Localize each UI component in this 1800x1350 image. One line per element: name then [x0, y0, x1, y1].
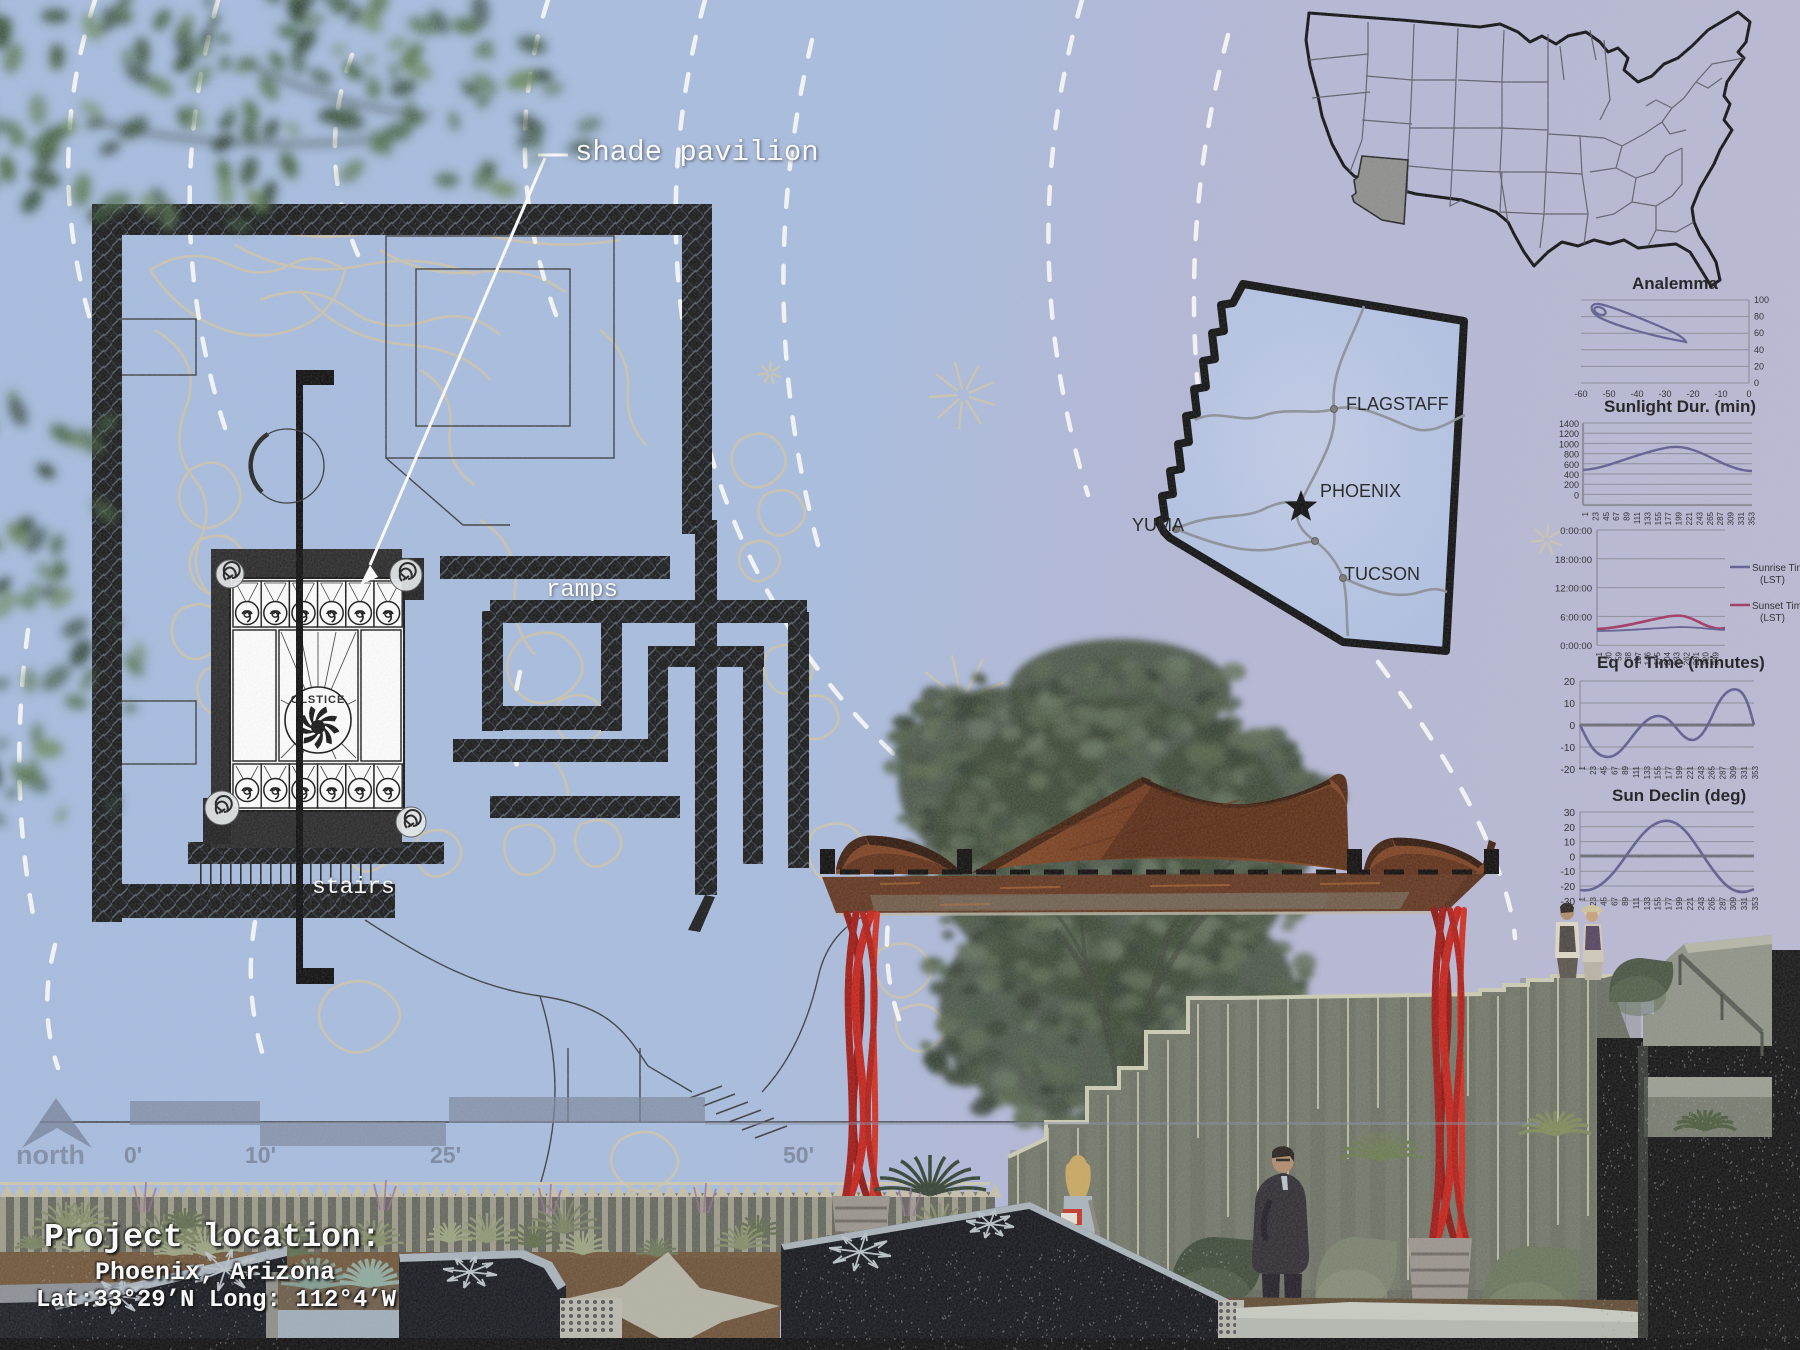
svg-text:PHOENIX: PHOENIX	[1320, 481, 1401, 501]
svg-text:309: 309	[1727, 511, 1736, 525]
svg-text:177: 177	[1664, 511, 1673, 525]
svg-text:331: 331	[1740, 896, 1749, 910]
svg-text:Sun Declin (deg): Sun Declin (deg)	[1612, 786, 1746, 805]
svg-text:YUMA: YUMA	[1132, 515, 1184, 535]
svg-text:1: 1	[1581, 511, 1590, 516]
svg-text:60: 60	[1754, 328, 1764, 338]
svg-text:1000: 1000	[1559, 439, 1579, 449]
svg-text:800: 800	[1564, 450, 1579, 460]
svg-text:23: 23	[1591, 511, 1600, 520]
svg-text:1400: 1400	[1559, 419, 1579, 429]
svg-text:199: 199	[1675, 511, 1684, 525]
svg-text:111: 111	[1632, 765, 1641, 778]
svg-text:400: 400	[1564, 470, 1579, 480]
svg-text:-10: -10	[1561, 743, 1576, 754]
svg-text:(LST): (LST)	[1760, 613, 1785, 624]
svg-text:287: 287	[1718, 896, 1727, 910]
svg-text:Analemma: Analemma	[1632, 274, 1719, 293]
svg-text:89: 89	[1621, 896, 1630, 905]
svg-text:45: 45	[1600, 765, 1609, 774]
svg-text:(LST): (LST)	[1760, 575, 1785, 586]
svg-text:20: 20	[1564, 823, 1576, 834]
svg-text:353: 353	[1751, 765, 1760, 779]
svg-text:353: 353	[1751, 896, 1760, 910]
svg-text:Sunlight Dur. (min): Sunlight Dur. (min)	[1604, 397, 1756, 416]
svg-text:0: 0	[1569, 852, 1575, 863]
svg-text:155: 155	[1654, 765, 1663, 779]
svg-text:331: 331	[1740, 765, 1749, 779]
svg-text:265: 265	[1708, 765, 1717, 779]
svg-text:18:00:00: 18:00:00	[1555, 555, 1592, 566]
svg-text:67: 67	[1610, 896, 1619, 905]
svg-text:265: 265	[1706, 511, 1715, 525]
svg-text:200: 200	[1564, 480, 1579, 490]
svg-text:243: 243	[1695, 511, 1704, 525]
svg-text:89: 89	[1623, 511, 1632, 520]
svg-text:155: 155	[1654, 511, 1663, 525]
svg-text:0: 0	[1574, 490, 1579, 500]
svg-text:10: 10	[1564, 838, 1576, 849]
svg-text:45: 45	[1600, 896, 1609, 905]
svg-text:Sunset Time: Sunset Time	[1752, 601, 1800, 612]
svg-text:199: 199	[1675, 765, 1684, 779]
svg-text:23: 23	[1589, 765, 1598, 774]
svg-text:1200: 1200	[1559, 429, 1579, 439]
svg-text:-10: -10	[1561, 867, 1576, 878]
svg-text:-60: -60	[1574, 389, 1587, 399]
svg-text:45: 45	[1602, 511, 1611, 520]
svg-text:111: 111	[1633, 511, 1642, 524]
svg-text:221: 221	[1686, 765, 1695, 779]
svg-text:221: 221	[1686, 896, 1695, 910]
svg-text:0:00:00: 0:00:00	[1560, 526, 1592, 537]
svg-text:133: 133	[1643, 765, 1652, 779]
svg-text:6:00:00: 6:00:00	[1560, 612, 1592, 623]
svg-text:89: 89	[1621, 765, 1630, 774]
svg-text:309: 309	[1729, 896, 1738, 910]
svg-text:155: 155	[1654, 896, 1663, 910]
svg-text:287: 287	[1716, 511, 1725, 525]
svg-text:0: 0	[1754, 378, 1759, 388]
svg-text:243: 243	[1697, 896, 1706, 910]
svg-text:0:00:00: 0:00:00	[1560, 641, 1592, 652]
svg-text:12:00:00: 12:00:00	[1555, 584, 1592, 595]
svg-text:Eq of Time (minutes): Eq of Time (minutes)	[1597, 653, 1765, 672]
svg-text:199: 199	[1675, 896, 1684, 910]
svg-text:600: 600	[1564, 460, 1579, 470]
svg-text:221: 221	[1685, 511, 1694, 525]
svg-text:100: 100	[1754, 295, 1769, 305]
svg-text:-20: -20	[1561, 765, 1576, 776]
svg-text:1: 1	[1578, 765, 1587, 770]
svg-text:10: 10	[1564, 699, 1576, 710]
svg-text:40: 40	[1754, 345, 1764, 355]
svg-text:FLAGSTAFF: FLAGSTAFF	[1346, 394, 1449, 414]
svg-text:309: 309	[1729, 765, 1738, 779]
svg-text:TUCSON: TUCSON	[1344, 564, 1420, 584]
svg-text:0: 0	[1569, 721, 1575, 732]
svg-text:Sunrise Time: Sunrise Time	[1752, 563, 1800, 574]
svg-text:20: 20	[1564, 677, 1576, 688]
svg-text:177: 177	[1664, 896, 1673, 910]
svg-text:20: 20	[1754, 361, 1764, 371]
svg-text:133: 133	[1643, 896, 1652, 910]
svg-text:67: 67	[1612, 511, 1621, 520]
svg-text:23: 23	[1589, 896, 1598, 905]
svg-text:243: 243	[1697, 765, 1706, 779]
svg-text:67: 67	[1610, 765, 1619, 774]
svg-text:353: 353	[1747, 511, 1756, 525]
svg-text:331: 331	[1737, 511, 1746, 525]
svg-text:80: 80	[1754, 312, 1764, 322]
svg-text:265: 265	[1708, 896, 1717, 910]
svg-text:1: 1	[1578, 896, 1587, 901]
svg-text:177: 177	[1664, 765, 1673, 779]
svg-text:-20: -20	[1561, 882, 1576, 893]
svg-text:287: 287	[1718, 765, 1727, 779]
svg-text:30: 30	[1564, 808, 1576, 819]
svg-text:133: 133	[1643, 511, 1652, 525]
svg-text:111: 111	[1632, 896, 1641, 909]
